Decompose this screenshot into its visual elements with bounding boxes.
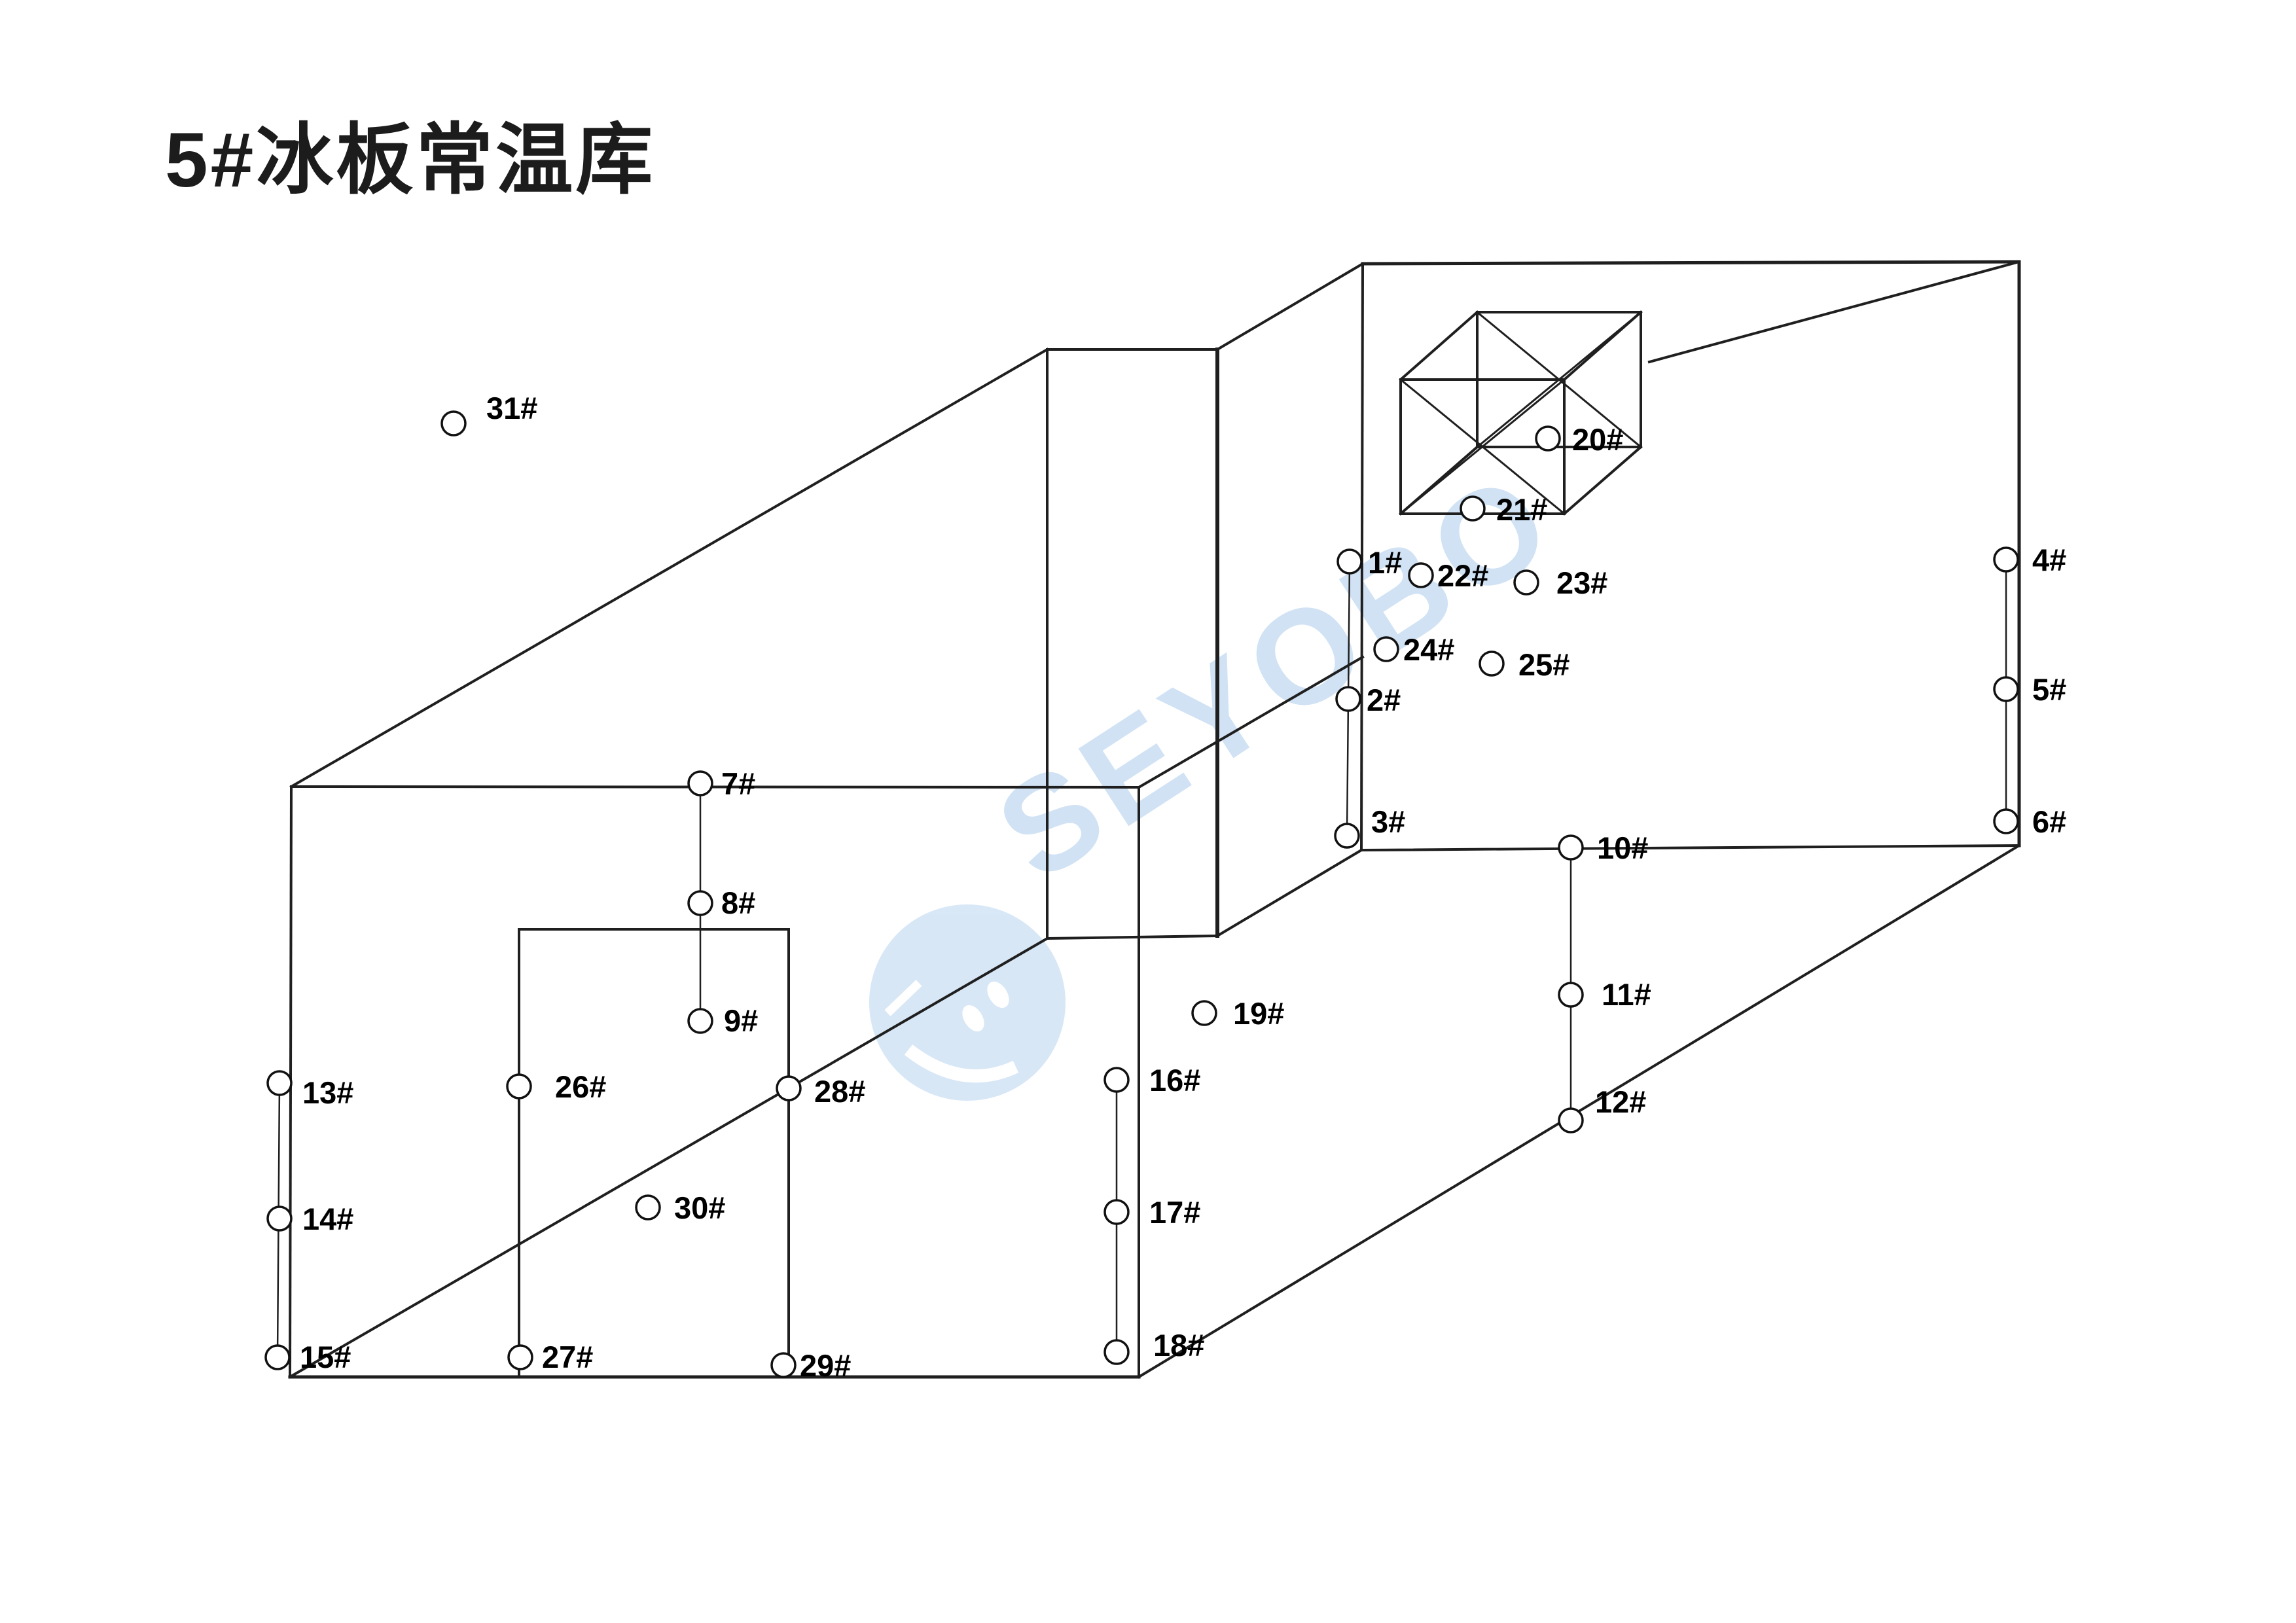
point-label: 28# — [814, 1074, 865, 1109]
point-label: 13# — [302, 1075, 353, 1110]
point-label: 15# — [300, 1340, 351, 1374]
measure-point-circle — [1994, 677, 2018, 701]
point-label: 18# — [1153, 1328, 1204, 1363]
measure-point-circle — [1105, 1340, 1128, 1364]
measure-point-circle — [777, 1077, 800, 1100]
measure-point-circle — [1480, 652, 1503, 675]
point-label: 17# — [1149, 1195, 1200, 1230]
point-label: 20# — [1572, 422, 1623, 457]
point-label: 25# — [1518, 647, 1570, 682]
measure-point-circle — [1336, 687, 1360, 711]
diagram-title: 5#冰板常温库 — [165, 117, 655, 204]
point-label: 8# — [721, 885, 755, 920]
watermark-layer: SEYOBO — [869, 440, 1582, 1101]
measure-point-circle — [1374, 637, 1398, 661]
point-label: 9# — [724, 1003, 758, 1038]
measure-point-circle — [1994, 810, 2018, 833]
measure-point-circle — [689, 891, 712, 915]
watermark-logo — [869, 904, 1066, 1101]
point-label: 21# — [1496, 492, 1547, 527]
wall-line — [1361, 846, 2019, 850]
point-label: 5# — [2032, 672, 2066, 707]
wall-line — [290, 938, 1047, 1377]
point-label: 16# — [1149, 1063, 1200, 1097]
point-label: 11# — [1602, 977, 1651, 1012]
point-label: 23# — [1556, 565, 1607, 600]
point-label: 14# — [302, 1202, 353, 1236]
point-label: 3# — [1371, 804, 1405, 839]
wall-line — [1401, 312, 1477, 380]
diagram-canvas: SEYOBO 1#2#3#4#5#6#7#8#9#10#11#12#13#14#… — [0, 0, 2296, 1623]
measure-point-circle — [689, 1009, 712, 1033]
wall-line — [1217, 264, 1363, 349]
wall-line — [1047, 936, 1217, 938]
measure-point-circle — [1193, 1001, 1216, 1025]
measure-point-circle — [1461, 497, 1484, 520]
measure-point-circle — [1409, 563, 1433, 587]
point-label: 6# — [2032, 804, 2066, 839]
measure-point-circle — [1559, 836, 1583, 859]
point-label: 26# — [555, 1069, 606, 1104]
measure-point-circle — [772, 1353, 795, 1377]
wall-line — [1363, 262, 2019, 264]
point-label: 1# — [1368, 545, 1402, 580]
point-label: 29# — [800, 1348, 851, 1383]
measure-point-circle — [1515, 571, 1538, 594]
point-label: 10# — [1597, 830, 1648, 865]
measure-point-circle — [1559, 983, 1583, 1007]
measure-point-circle — [1994, 548, 2018, 571]
point-label: 7# — [721, 766, 755, 801]
measure-point-circle — [266, 1346, 289, 1369]
wall-line — [291, 787, 1139, 787]
page: SEYOBO 1#2#3#4#5#6#7#8#9#10#11#12#13#14#… — [0, 0, 2296, 1623]
point-label: 12# — [1595, 1084, 1646, 1119]
point-label: 2# — [1367, 683, 1401, 717]
measure-point-circle — [1335, 824, 1359, 847]
point-label: 4# — [2032, 543, 2066, 577]
measure-point-circle — [1105, 1200, 1128, 1224]
measure-point-circle — [442, 412, 465, 435]
measure-point-circle — [636, 1196, 660, 1219]
measure-point-circle — [1105, 1068, 1128, 1092]
point-label: 19# — [1233, 996, 1284, 1031]
wall-line — [1649, 262, 2019, 362]
measure-point-circle — [507, 1075, 531, 1098]
measure-point-circle — [1536, 427, 1560, 450]
point-label: 24# — [1403, 632, 1454, 667]
point-label: 27# — [542, 1340, 593, 1374]
point-label: 30# — [674, 1190, 725, 1225]
measure-point-circle — [509, 1346, 532, 1369]
point-label: 31# — [486, 391, 537, 425]
wall-line — [1564, 447, 1641, 514]
measure-point-circle — [268, 1207, 291, 1230]
measure-point-circle — [1559, 1109, 1583, 1132]
wall-line — [291, 349, 1047, 787]
wall-line — [1217, 850, 1361, 936]
measure-point-circle — [689, 772, 712, 795]
measure-point-circle — [1338, 550, 1361, 573]
measure-point-circle — [268, 1071, 291, 1095]
point-label: 22# — [1437, 558, 1488, 593]
